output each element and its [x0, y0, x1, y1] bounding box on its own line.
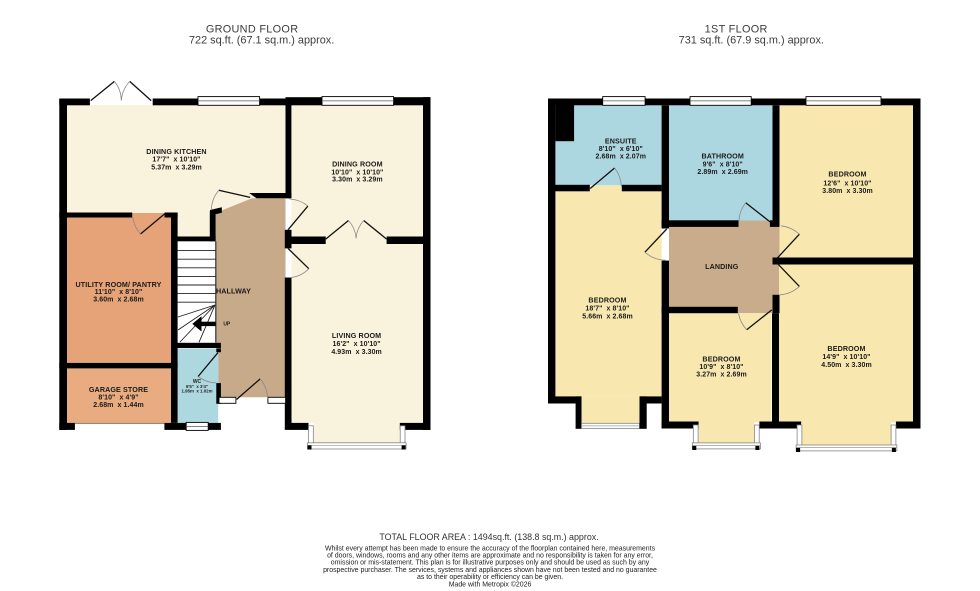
svg-text:of doors, windows, rooms and a: of doors, windows, rooms and any other i…: [327, 553, 653, 560]
svg-text:TOTAL FLOOR AREA : 1494sq.ft.: TOTAL FLOOR AREA : 1494sq.ft. (138.8 sq.…: [379, 532, 598, 542]
svg-text:18'7" x 8'10": 18'7" x 8'10": [585, 306, 629, 313]
svg-text:BATHROOM: BATHROOM: [701, 153, 743, 161]
svg-text:8'10" x 4'9": 8'10" x 4'9": [98, 395, 138, 402]
svg-text:HALLWAY: HALLWAY: [216, 287, 251, 295]
svg-text:17'7" x 10'10": 17'7" x 10'10": [152, 157, 200, 164]
svg-text:UP: UP: [223, 322, 231, 328]
svg-text:2.89m x 2.69m: 2.89m x 2.69m: [697, 169, 748, 176]
svg-text:prospective purchaser. The ser: prospective purchaser. The services, sys…: [323, 567, 657, 574]
svg-text:BEDROOM: BEDROOM: [588, 297, 626, 305]
svg-text:DINING KITCHEN: DINING KITCHEN: [146, 148, 206, 156]
svg-text:4.93m x 3.30m: 4.93m x 3.30m: [331, 349, 382, 356]
svg-text:BEDROOM: BEDROOM: [702, 356, 740, 364]
svg-text:3.30m x 3.29m: 3.30m x 3.29m: [332, 176, 383, 183]
svg-text:8'10" x 6'10": 8'10" x 6'10": [599, 146, 643, 153]
svg-text:Made with Metropix ©2026: Made with Metropix ©2026: [449, 580, 532, 588]
svg-text:14'9" x 10'10": 14'9" x 10'10": [822, 354, 870, 361]
svg-text:LIVING ROOM: LIVING ROOM: [332, 332, 381, 340]
svg-text:10'9" x 8'10": 10'9" x 8'10": [699, 364, 743, 371]
svg-text:DINING ROOM: DINING ROOM: [332, 161, 383, 169]
svg-text:omission or mis-statement. Thi: omission or mis-statement. This plan is …: [331, 560, 650, 567]
svg-text:LANDING: LANDING: [705, 263, 739, 271]
svg-text:2.68m x 1.44m: 2.68m x 1.44m: [93, 402, 144, 409]
svg-text:ENSUITE: ENSUITE: [605, 138, 637, 146]
svg-text:Whilst every attempt has been: Whilst every attempt has been made to en…: [325, 545, 656, 552]
svg-text:11'10" x 8'10": 11'10" x 8'10": [95, 289, 143, 296]
svg-text:731 sq.ft. (67.9 sq.m.) approx: 731 sq.ft. (67.9 sq.m.) approx.: [679, 35, 824, 47]
svg-text:12'6" x 10'10": 12'6" x 10'10": [823, 180, 871, 187]
svg-text:3.27m x 2.69m: 3.27m x 2.69m: [696, 371, 747, 378]
svg-text:4.50m x 3.30m: 4.50m x 3.30m: [821, 362, 872, 369]
svg-text:as to their operability or eff: as to their operability or efficiency ca…: [417, 574, 563, 581]
svg-text:GROUND FLOOR: GROUND FLOOR: [206, 23, 299, 35]
svg-text:722 sq.ft. (67.1 sq.m.) approx: 722 sq.ft. (67.1 sq.m.) approx.: [189, 35, 334, 47]
svg-text:3.60m x 2.68m: 3.60m x 2.68m: [93, 297, 144, 304]
svg-text:2.68m x 2.07m: 2.68m x 2.07m: [596, 154, 647, 161]
svg-text:1.95m x 1.02m: 1.95m x 1.02m: [181, 389, 212, 394]
svg-text:BEDROOM: BEDROOM: [828, 170, 866, 178]
svg-text:5.37m x 3.29m: 5.37m x 3.29m: [151, 164, 202, 171]
svg-text:UTILITY ROOM/ PANTRY: UTILITY ROOM/ PANTRY: [76, 281, 162, 289]
svg-text:GARAGE STORE: GARAGE STORE: [89, 386, 148, 394]
svg-text:16'2" x 10'10": 16'2" x 10'10": [333, 341, 381, 348]
svg-text:3.80m x 3.30m: 3.80m x 3.30m: [822, 188, 873, 195]
svg-text:5.66m x 2.68m: 5.66m x 2.68m: [582, 314, 633, 321]
svg-text:BEDROOM: BEDROOM: [827, 345, 865, 353]
svg-text:1ST FLOOR: 1ST FLOOR: [705, 23, 768, 35]
svg-text:9'6" x 8'10": 9'6" x 8'10": [703, 162, 743, 169]
